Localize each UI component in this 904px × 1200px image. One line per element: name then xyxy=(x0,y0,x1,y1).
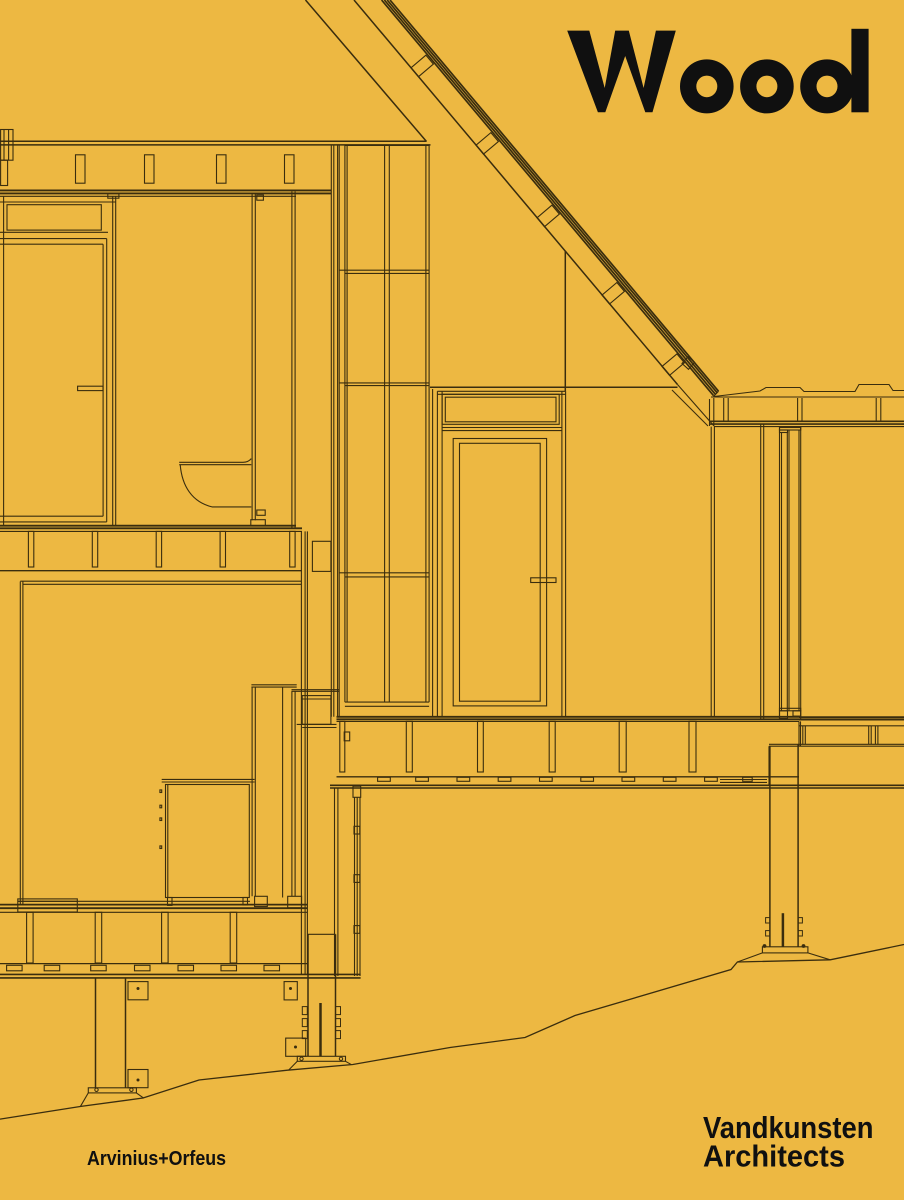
svg-text:Architects: Architects xyxy=(703,1138,845,1173)
svg-text:Arvinius+Orfeus: Arvinius+Orfeus xyxy=(87,1148,226,1170)
